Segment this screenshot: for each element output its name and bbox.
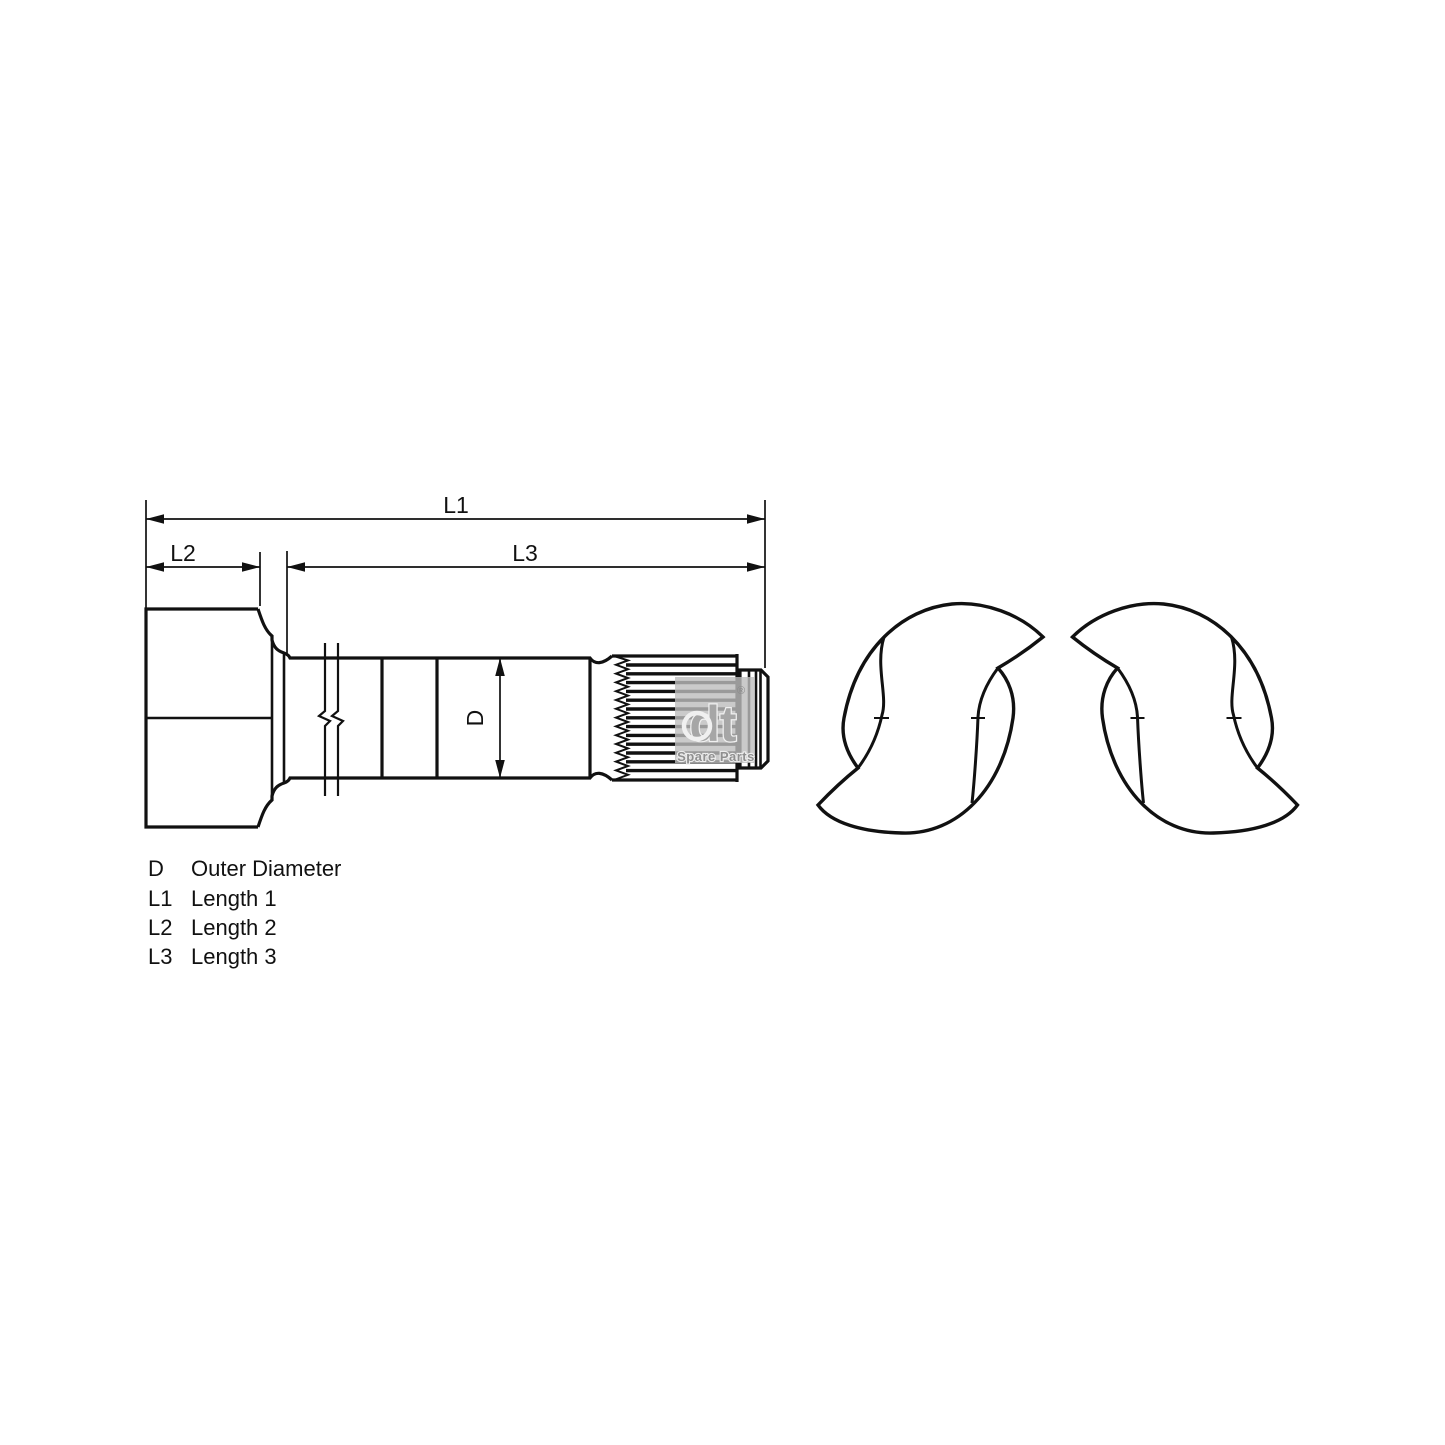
dimension-d: D <box>462 658 505 778</box>
dimension-label-l2: L2 <box>170 540 196 566</box>
s-cam-profile-left <box>818 604 1043 833</box>
legend-desc: Length 3 <box>191 944 277 969</box>
technical-drawing-page: L1 L2 L3 D <box>0 0 1445 1445</box>
arrowhead-l3-right <box>747 562 765 572</box>
dimension-label-d: D <box>462 710 488 727</box>
dimension-label-l3: L3 <box>512 540 538 566</box>
arrowhead-d-bottom <box>495 760 505 778</box>
legend-term: D <box>148 856 164 881</box>
camshaft-technical-drawing: L1 L2 L3 D <box>0 0 1445 1445</box>
break-mark-right <box>332 643 343 796</box>
legend-desc: Length 1 <box>191 886 277 911</box>
watermark-subtitle: Spare Parts <box>677 749 755 764</box>
break-mark-left <box>319 643 330 796</box>
legend: D Outer Diameter L1 Length 1 L2 Length 2… <box>148 856 341 969</box>
legend-term: L2 <box>148 915 172 940</box>
legend-term: L1 <box>148 886 172 911</box>
arrowhead-l2-right <box>242 562 260 572</box>
arrowhead-l2-left <box>146 562 164 572</box>
dimension-label-l1: L1 <box>443 492 469 518</box>
dt-watermark: dt ® Spare Parts <box>675 677 755 764</box>
s-cam-left-shape <box>818 604 1043 833</box>
arrowhead-l1-right <box>747 514 765 524</box>
arrowhead-l3-left <box>287 562 305 572</box>
registered-trademark-symbol: ® <box>737 685 745 697</box>
shaft-bottom-profile <box>258 773 612 827</box>
arrowhead-l1-left <box>146 514 164 524</box>
arrowhead-d-top <box>495 658 505 676</box>
s-cam-right-shape <box>1073 604 1298 833</box>
legend-desc: Outer Diameter <box>191 856 341 881</box>
legend-term: L3 <box>148 944 172 969</box>
s-cam-profile-right <box>1073 604 1298 833</box>
legend-desc: Length 2 <box>191 915 277 940</box>
dimension-l3: L3 <box>287 540 765 572</box>
dimension-l1: L1 <box>146 492 765 524</box>
dt-logo-text: dt <box>689 696 737 752</box>
camshaft-side-view <box>146 609 768 827</box>
dimension-l2: L2 <box>146 540 260 572</box>
shaft-top-profile <box>258 609 612 663</box>
spline-lead-in-serration <box>614 656 628 780</box>
